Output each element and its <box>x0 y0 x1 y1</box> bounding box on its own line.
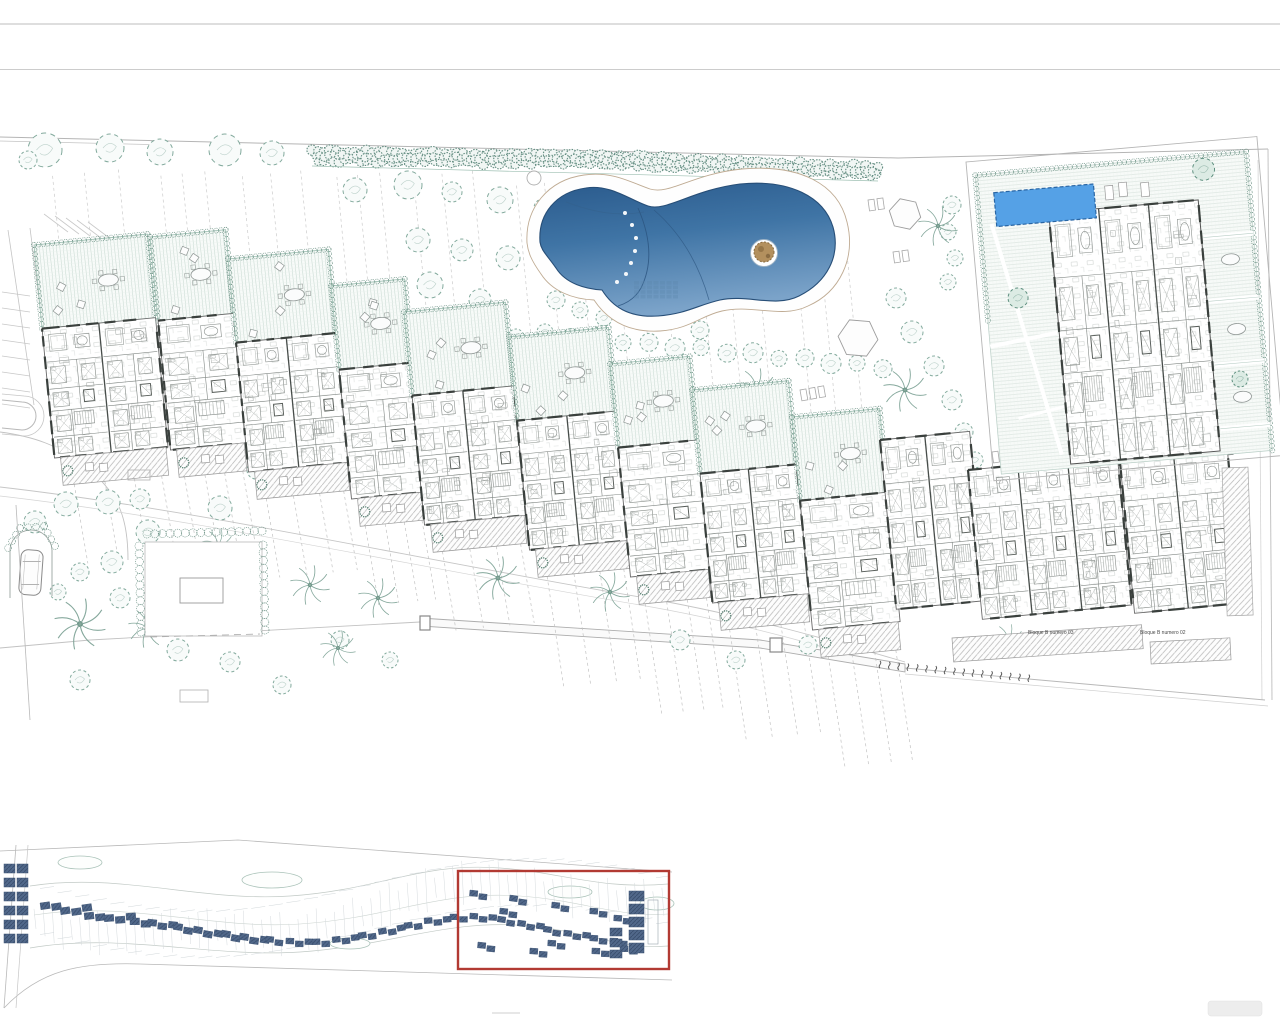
svg-text:Bloque B numero 03: Bloque B numero 03 <box>1028 630 1074 636</box>
svg-text:Bloque B numero 02: Bloque B numero 02 <box>1140 630 1186 636</box>
